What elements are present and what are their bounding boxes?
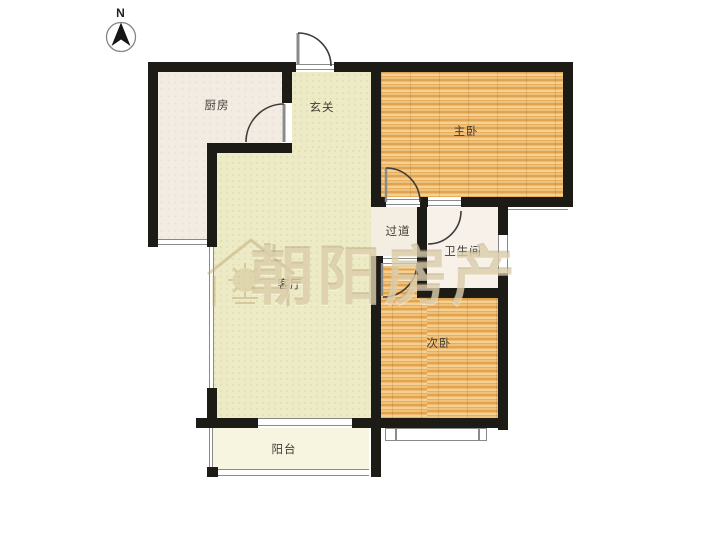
second-bedroom-door-threshold — [383, 258, 417, 264]
room-label-master-bedroom: 主卧 — [454, 123, 479, 139]
wall-segment — [196, 418, 258, 428]
wall-segment — [371, 197, 386, 207]
room-label-kitchen: 厨房 — [205, 97, 230, 113]
wall-segment — [371, 62, 381, 207]
entrance-threshold — [296, 64, 334, 70]
wall-segment — [461, 197, 573, 207]
floor-plan: N 厨房 玄关 主卧 过道 卫生间 客厅 次卧 阳台 朝阳房产 — [0, 0, 720, 540]
bay-window-mullion — [395, 429, 397, 440]
compass-north-label: N — [116, 6, 126, 20]
living-room-west-window — [209, 247, 214, 388]
bay-window-mullion — [478, 429, 480, 440]
wall-segment — [207, 143, 217, 247]
wall-segment — [417, 207, 427, 288]
room-label-bathroom: 卫生间 — [444, 243, 482, 259]
north-arrow-icon — [112, 23, 131, 47]
wall-segment — [207, 388, 217, 428]
wall-segment — [207, 143, 292, 153]
room-label-living-room: 客厅 — [278, 276, 303, 292]
kitchen-floor-lower — [158, 143, 207, 240]
wall-segment — [498, 288, 508, 430]
second-bedroom-floor — [427, 288, 500, 418]
bathroom-door-leaf — [428, 200, 461, 206]
room-label-entry: 玄关 — [310, 99, 335, 115]
kitchen-window — [158, 239, 207, 245]
balcony-railing — [217, 469, 369, 476]
compass-icon — [107, 23, 136, 52]
wall-segment — [148, 62, 158, 247]
bay-window — [385, 428, 487, 441]
master-door-threshold — [386, 199, 420, 205]
wall-segment — [498, 207, 508, 235]
wall-segment — [334, 62, 573, 72]
wall-segment — [148, 62, 296, 72]
room-label-second-bedroom: 次卧 — [427, 335, 452, 351]
wall-segment — [420, 197, 428, 207]
room-label-hallway: 过道 — [386, 223, 411, 239]
wall-segment — [282, 62, 292, 103]
wall-segment — [563, 62, 573, 207]
wall-segment — [371, 256, 381, 477]
room-label-balcony: 阳台 — [272, 441, 297, 457]
wall-segment — [352, 418, 381, 428]
balcony-sliding-door — [258, 418, 352, 426]
bathroom-window — [498, 235, 508, 273]
wall-segment — [371, 418, 508, 428]
balcony-left-window — [209, 428, 213, 467]
wall-segment — [207, 467, 218, 477]
entrance-door-arc — [298, 33, 331, 66]
wall-segment — [417, 288, 508, 298]
